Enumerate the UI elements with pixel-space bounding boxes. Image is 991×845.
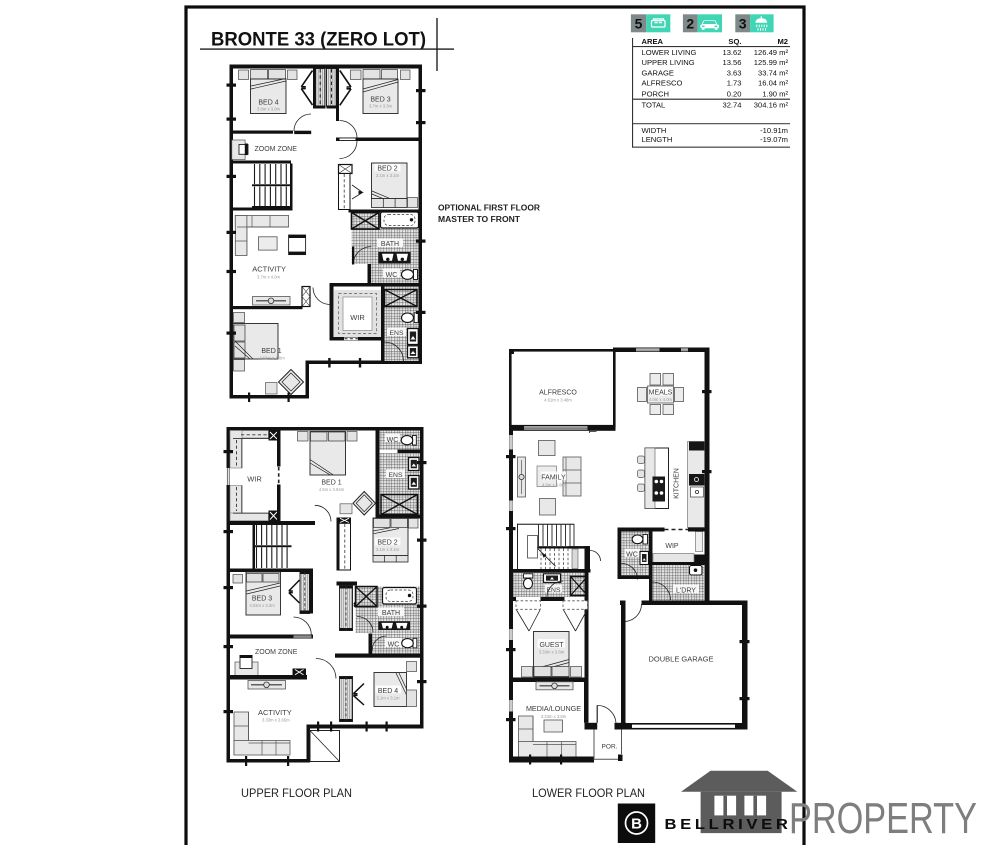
svg-text:3.33m x 3.8m: 3.33m x 3.8m bbox=[539, 650, 565, 655]
svg-text:3.1m x 3.1m: 3.1m x 3.1m bbox=[376, 696, 400, 701]
svg-text:-19.07m: -19.07m bbox=[760, 135, 788, 144]
svg-text:BED 1: BED 1 bbox=[261, 348, 281, 355]
svg-text:3.03m x 3.3m: 3.03m x 3.3m bbox=[249, 603, 275, 608]
svg-text:ACTIVITY: ACTIVITY bbox=[258, 708, 292, 717]
svg-text:0.20: 0.20 bbox=[727, 89, 742, 98]
svg-text:LOWER FLOOR PLAN: LOWER FLOOR PLAN bbox=[532, 788, 645, 800]
svg-text:BED 3: BED 3 bbox=[370, 97, 390, 104]
svg-text:16.04 m²: 16.04 m² bbox=[758, 79, 788, 88]
svg-text:MEALS: MEALS bbox=[649, 389, 673, 396]
svg-text:WC: WC bbox=[387, 437, 399, 444]
svg-text:5: 5 bbox=[635, 16, 643, 32]
svg-text:3.1m x 3.1m: 3.1m x 3.1m bbox=[376, 173, 400, 178]
svg-text:BED 1: BED 1 bbox=[321, 480, 341, 487]
svg-text:13.62: 13.62 bbox=[722, 48, 741, 57]
svg-text:4.62m x 4.0m: 4.62m x 4.0m bbox=[259, 356, 285, 361]
svg-text:PROPERTY: PROPERTY bbox=[789, 794, 977, 843]
svg-text:POR.: POR. bbox=[602, 744, 618, 751]
svg-text:ENS: ENS bbox=[389, 472, 403, 479]
svg-text:125.99 m²: 125.99 m² bbox=[754, 58, 789, 67]
svg-text:LOWER LIVING: LOWER LIVING bbox=[642, 48, 697, 57]
svg-text:ALFRESCO: ALFRESCO bbox=[642, 79, 683, 88]
svg-text:BRONTE 33 (ZERO LOT): BRONTE 33 (ZERO LOT) bbox=[211, 28, 426, 50]
svg-text:WC: WC bbox=[386, 272, 398, 279]
svg-text:BATH: BATH bbox=[382, 610, 400, 617]
svg-text:3.7m x 4.0m: 3.7m x 4.0m bbox=[257, 275, 281, 280]
svg-text:FAMILY: FAMILY bbox=[541, 475, 566, 482]
svg-text:WIP: WIP bbox=[665, 543, 679, 550]
svg-text:ALFRESCO: ALFRESCO bbox=[539, 390, 577, 397]
svg-text:B: B bbox=[631, 815, 642, 832]
svg-text:DOUBLE GARAGE: DOUBLE GARAGE bbox=[648, 655, 713, 664]
svg-text:3.6m x 3.0m: 3.6m x 3.0m bbox=[257, 107, 281, 112]
svg-text:PORCH: PORCH bbox=[642, 89, 669, 98]
svg-text:WIR: WIR bbox=[350, 313, 365, 322]
svg-text:TOTAL: TOTAL bbox=[642, 100, 666, 109]
svg-text:4.6m x 4.8m: 4.6m x 4.8m bbox=[542, 483, 566, 488]
svg-text:4.5m x 3.94m: 4.5m x 3.94m bbox=[319, 487, 345, 492]
svg-text:UPPER LIVING: UPPER LIVING bbox=[642, 58, 695, 67]
svg-text:3.1m x 3.1m: 3.1m x 3.1m bbox=[376, 547, 400, 552]
svg-text:-10.91m: -10.91m bbox=[760, 126, 788, 135]
svg-text:UPPER FLOOR PLAN: UPPER FLOOR PLAN bbox=[241, 788, 352, 800]
svg-text:AREA: AREA bbox=[642, 37, 664, 46]
svg-text:3.33m x 3.65m: 3.33m x 3.65m bbox=[262, 718, 290, 723]
svg-text:1.73: 1.73 bbox=[727, 79, 742, 88]
svg-text:GUEST: GUEST bbox=[539, 642, 564, 649]
svg-text:WIDTH: WIDTH bbox=[642, 126, 667, 135]
svg-text:4.61m x 3.48m: 4.61m x 3.48m bbox=[544, 398, 572, 403]
svg-text:32.74: 32.74 bbox=[722, 100, 741, 109]
svg-text:304.16 m²: 304.16 m² bbox=[754, 100, 789, 109]
svg-text:BATH: BATH bbox=[381, 241, 399, 248]
svg-text:BELLRIVER: BELLRIVER bbox=[665, 817, 792, 833]
svg-text:1.90 m²: 1.90 m² bbox=[762, 89, 788, 98]
svg-text:WC: WC bbox=[388, 641, 400, 648]
svg-text:WC: WC bbox=[626, 552, 638, 559]
svg-text:GARAGE: GARAGE bbox=[642, 69, 675, 78]
svg-text:4.0m x 4.0m: 4.0m x 4.0m bbox=[649, 397, 673, 402]
svg-text:MEDIA/LOUNGE: MEDIA/LOUNGE bbox=[526, 704, 581, 713]
svg-text:3.63: 3.63 bbox=[727, 69, 742, 78]
svg-text:BED 2: BED 2 bbox=[377, 540, 397, 547]
svg-text:WIR: WIR bbox=[247, 475, 262, 484]
svg-text:LENGTH: LENGTH bbox=[642, 135, 673, 144]
svg-text:ACTIVITY: ACTIVITY bbox=[252, 265, 286, 274]
svg-text:2: 2 bbox=[686, 16, 694, 32]
svg-text:ENS: ENS bbox=[390, 330, 404, 337]
svg-text:BED 3: BED 3 bbox=[252, 596, 272, 603]
svg-text:3: 3 bbox=[739, 16, 747, 32]
svg-text:KITCHEN: KITCHEN bbox=[674, 468, 681, 499]
svg-text:13.56: 13.56 bbox=[722, 58, 741, 67]
svg-text:L'DRY: L'DRY bbox=[676, 587, 696, 594]
svg-text:BED 4: BED 4 bbox=[378, 688, 398, 695]
svg-text:BED 2: BED 2 bbox=[377, 165, 397, 172]
svg-text:M2: M2 bbox=[777, 37, 788, 46]
svg-text:ZOOM ZONE: ZOOM ZONE bbox=[255, 649, 298, 656]
svg-text:3.33m x 3.8m: 3.33m x 3.8m bbox=[541, 714, 567, 719]
svg-text:MASTER TO FRONT: MASTER TO FRONT bbox=[438, 215, 520, 224]
svg-text:SQ.: SQ. bbox=[728, 37, 741, 46]
svg-text:BED 4: BED 4 bbox=[258, 100, 278, 107]
svg-text:33.74 m²: 33.74 m² bbox=[758, 69, 788, 78]
svg-text:ZOOM ZONE: ZOOM ZONE bbox=[255, 146, 298, 153]
svg-text:126.49 m²: 126.49 m² bbox=[754, 48, 789, 57]
svg-text:OPTIONAL FIRST FLOOR: OPTIONAL FIRST FLOOR bbox=[438, 204, 540, 213]
svg-text:3.7m x 3.3m: 3.7m x 3.3m bbox=[369, 104, 393, 109]
